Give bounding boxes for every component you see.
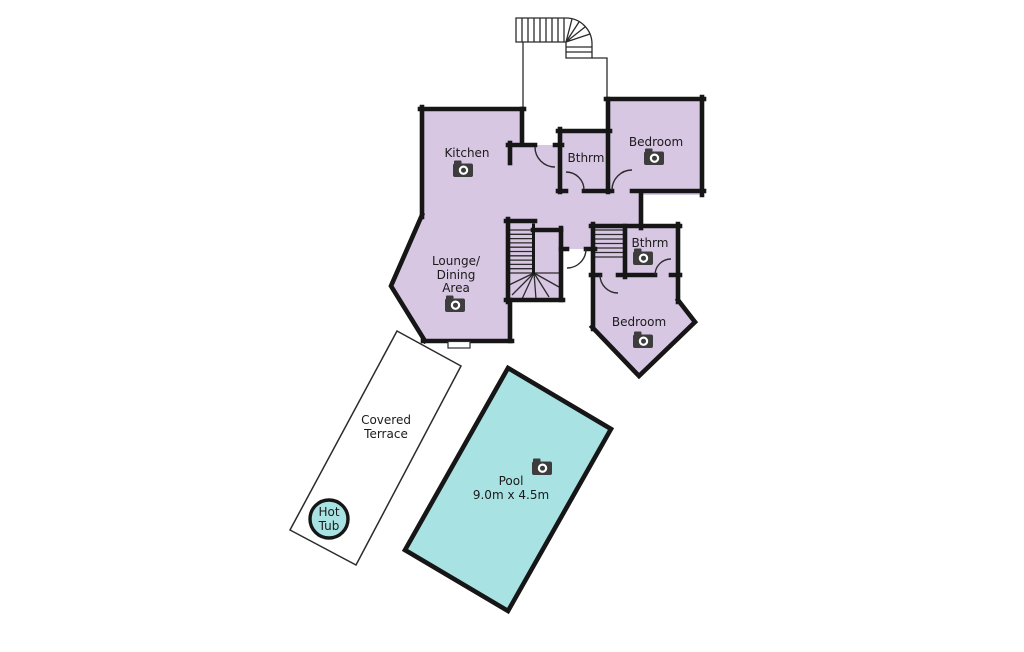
pool-dimensions-label: 9.0m x 4.5m [473, 488, 549, 502]
lounge-label-line2: Dining [437, 268, 476, 282]
hot-tub-label-line2: Tub [318, 519, 340, 533]
bedroom-upper-label: Bedroom [629, 135, 683, 149]
bedroom-lower-label: Bedroom [612, 315, 666, 329]
pool-label: Pool [499, 474, 524, 488]
terrace-label-line2: Terrace [363, 427, 408, 441]
lounge-threshold-notch [448, 342, 470, 349]
terrace-label-line1: Covered [361, 413, 411, 427]
floorplan-canvas: Kitchen Bthrm Bedroom Lounge/ Dining Are… [0, 0, 1024, 652]
hot-tub-label-line1: Hot [318, 505, 339, 519]
bathroom-lower-label: Bthrm [632, 236, 669, 250]
entry-landing-outline [523, 42, 607, 109]
lounge-label-line1: Lounge/ [432, 254, 481, 268]
passage-door-arc [567, 249, 586, 268]
lounge-label-line3: Area [442, 281, 470, 295]
spiral-staircase [516, 18, 592, 58]
kitchen-label: Kitchen [444, 146, 489, 160]
bathroom-upper-label: Bthrm [568, 151, 605, 165]
floorplan-svg: Kitchen Bthrm Bedroom Lounge/ Dining Are… [0, 0, 1024, 652]
